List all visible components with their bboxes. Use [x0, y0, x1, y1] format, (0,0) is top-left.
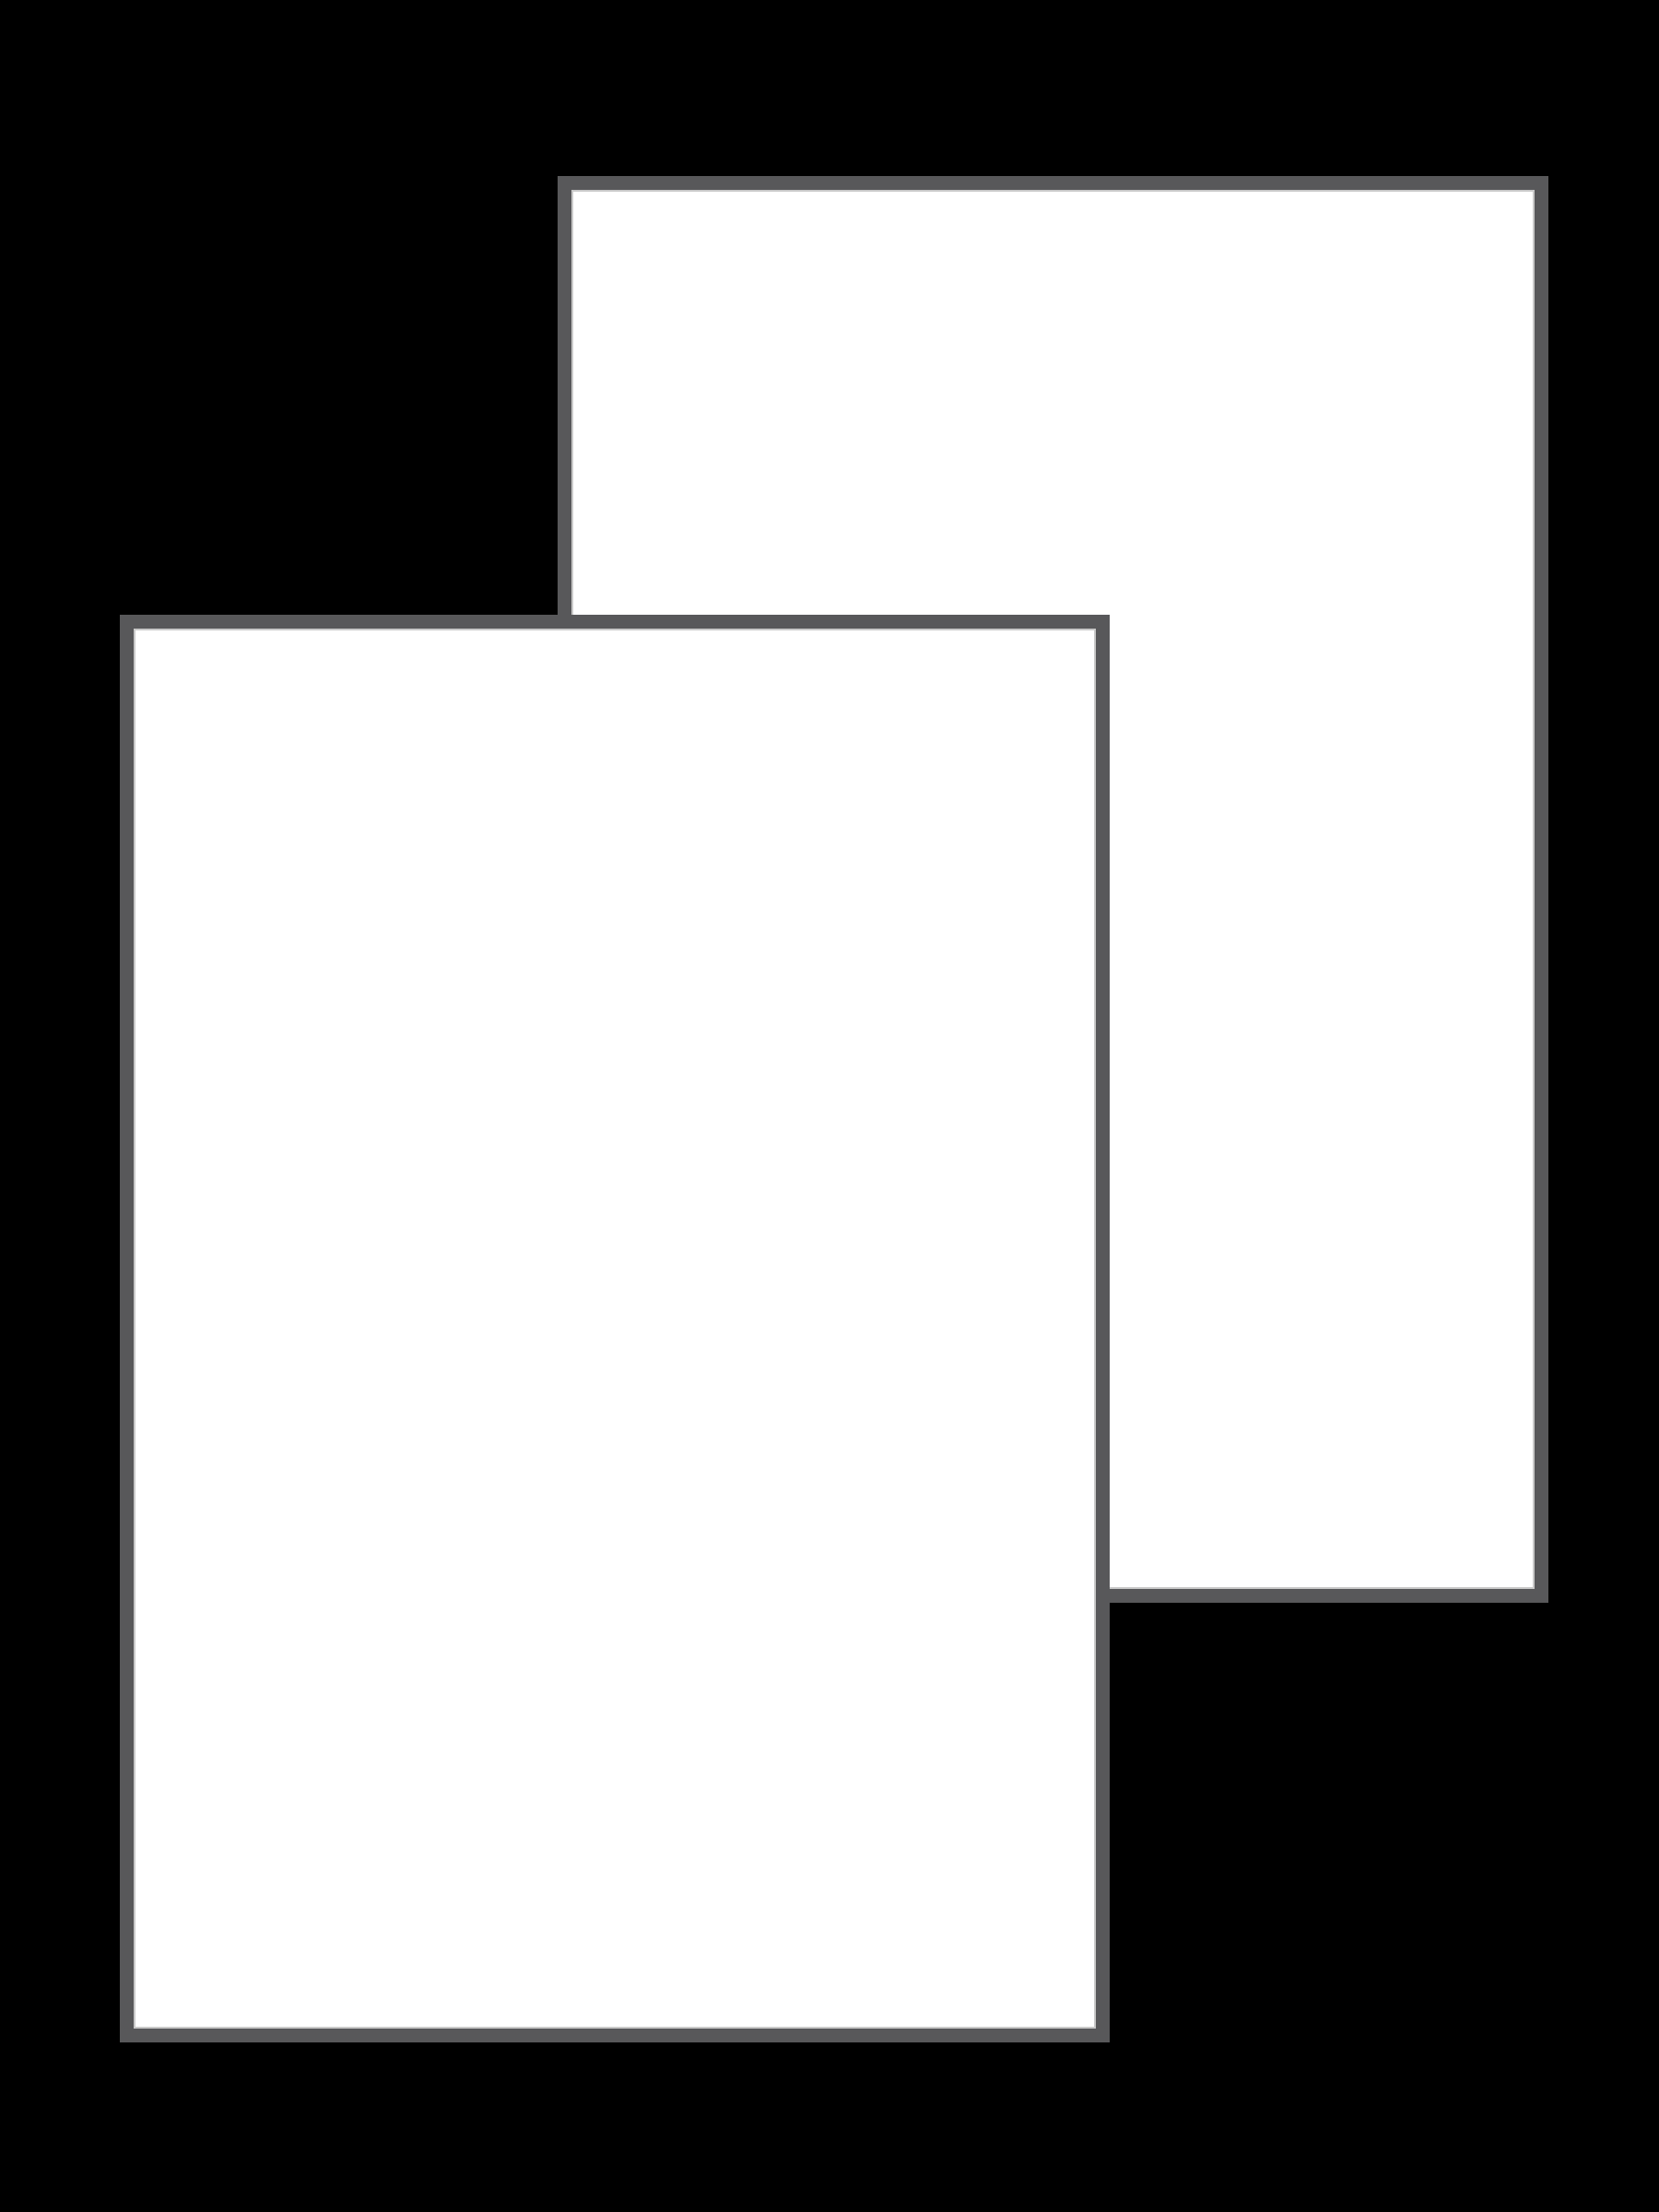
front-page — [120, 615, 1110, 2042]
canvas — [0, 0, 1659, 2212]
